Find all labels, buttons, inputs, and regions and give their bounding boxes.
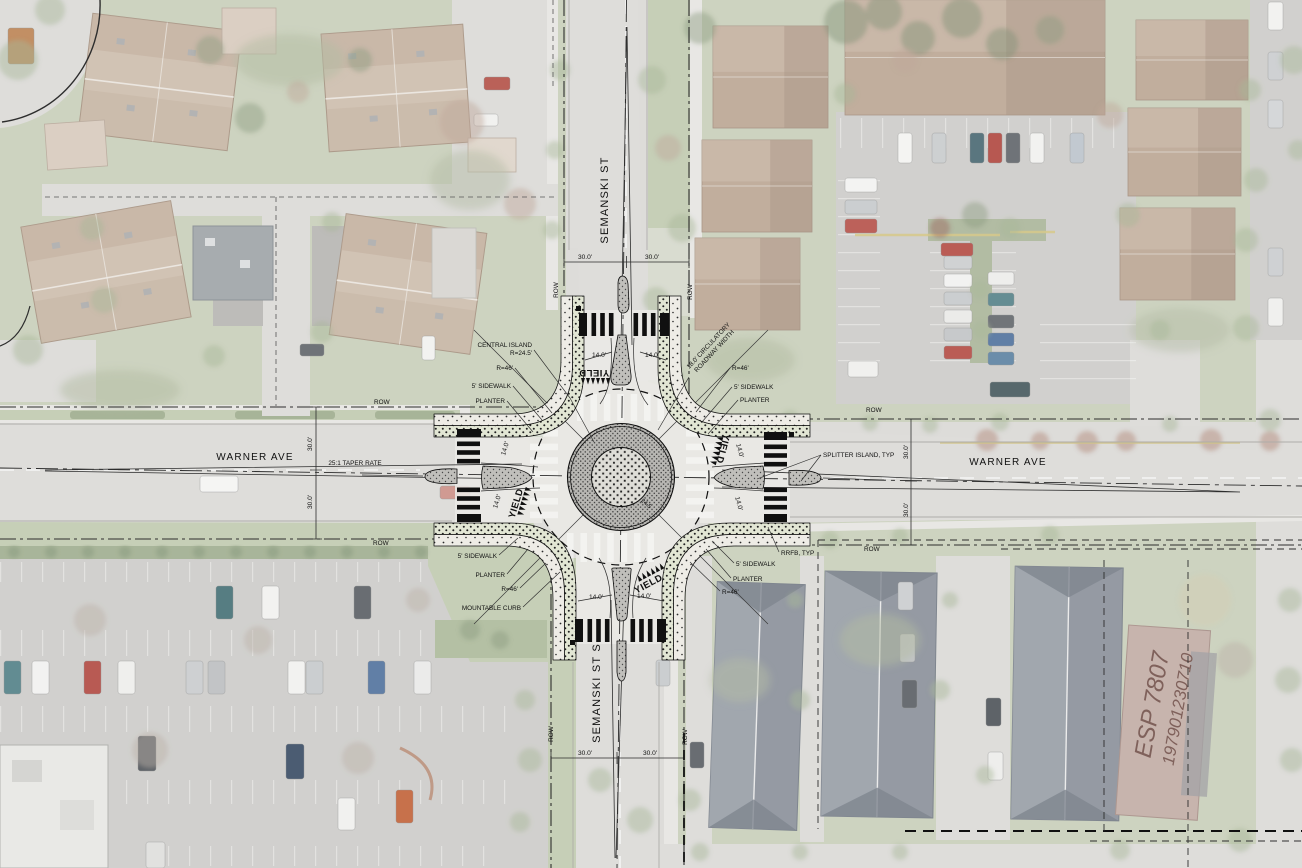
svg-text:14.0': 14.0' bbox=[592, 352, 606, 359]
svg-text:PLANTER: PLANTER bbox=[740, 397, 770, 404]
svg-text:ROW: ROW bbox=[373, 540, 390, 547]
svg-text:MOUNTABLE CURB: MOUNTABLE CURB bbox=[462, 605, 521, 612]
svg-text:PLANTER: PLANTER bbox=[476, 398, 506, 405]
svg-text:30.0': 30.0' bbox=[903, 503, 910, 517]
svg-text:5' SIDEWALK: 5' SIDEWALK bbox=[734, 384, 774, 391]
svg-text:ROW: ROW bbox=[864, 546, 881, 553]
svg-text:R=46': R=46' bbox=[496, 365, 513, 372]
svg-text:SEMANSKI ST: SEMANSKI ST bbox=[599, 156, 611, 243]
svg-text:R=24.5': R=24.5' bbox=[510, 350, 532, 357]
svg-text:R=46': R=46' bbox=[732, 365, 749, 372]
svg-text:SEMANSKI ST S: SEMANSKI ST S bbox=[591, 643, 603, 743]
svg-text:14.0': 14.0' bbox=[637, 593, 651, 600]
svg-text:ROW: ROW bbox=[548, 725, 555, 742]
svg-text:30.0': 30.0' bbox=[903, 445, 910, 459]
svg-text:YIELD: YIELD bbox=[579, 367, 609, 378]
svg-text:5' SIDEWALK: 5' SIDEWALK bbox=[736, 561, 776, 568]
svg-text:R=46': R=46' bbox=[501, 586, 518, 593]
svg-text:30.0': 30.0' bbox=[307, 437, 314, 451]
svg-text:30.0': 30.0' bbox=[578, 750, 592, 757]
svg-text:5' SIDEWALK: 5' SIDEWALK bbox=[472, 383, 512, 390]
svg-text:ROW: ROW bbox=[687, 283, 694, 300]
svg-text:PLANTER: PLANTER bbox=[476, 572, 506, 579]
svg-text:PLANTER: PLANTER bbox=[733, 576, 763, 583]
svg-text:ROW: ROW bbox=[553, 281, 560, 298]
svg-text:5' SIDEWALK: 5' SIDEWALK bbox=[458, 553, 498, 560]
svg-text:WARNER AVE: WARNER AVE bbox=[969, 457, 1047, 468]
svg-text:CENTRAL ISLAND: CENTRAL ISLAND bbox=[478, 342, 533, 349]
svg-text:SPLITTER ISLAND, TYP: SPLITTER ISLAND, TYP bbox=[823, 452, 894, 459]
svg-text:30.0': 30.0' bbox=[643, 750, 657, 757]
svg-text:ROW: ROW bbox=[682, 728, 689, 745]
svg-text:14.0': 14.0' bbox=[589, 594, 603, 601]
svg-text:25:1 TAPER RATE: 25:1 TAPER RATE bbox=[328, 460, 381, 467]
svg-text:RRFB, TYP: RRFB, TYP bbox=[781, 550, 814, 557]
svg-text:14.0': 14.0' bbox=[645, 352, 659, 359]
svg-text:30.0': 30.0' bbox=[645, 254, 659, 261]
svg-text:30.0': 30.0' bbox=[307, 495, 314, 509]
svg-text:ROW: ROW bbox=[866, 407, 883, 414]
svg-text:ROW: ROW bbox=[374, 399, 391, 406]
svg-text:R=46': R=46' bbox=[722, 589, 739, 596]
svg-text:30.0': 30.0' bbox=[578, 254, 592, 261]
svg-text:WARNER AVE: WARNER AVE bbox=[216, 452, 294, 463]
